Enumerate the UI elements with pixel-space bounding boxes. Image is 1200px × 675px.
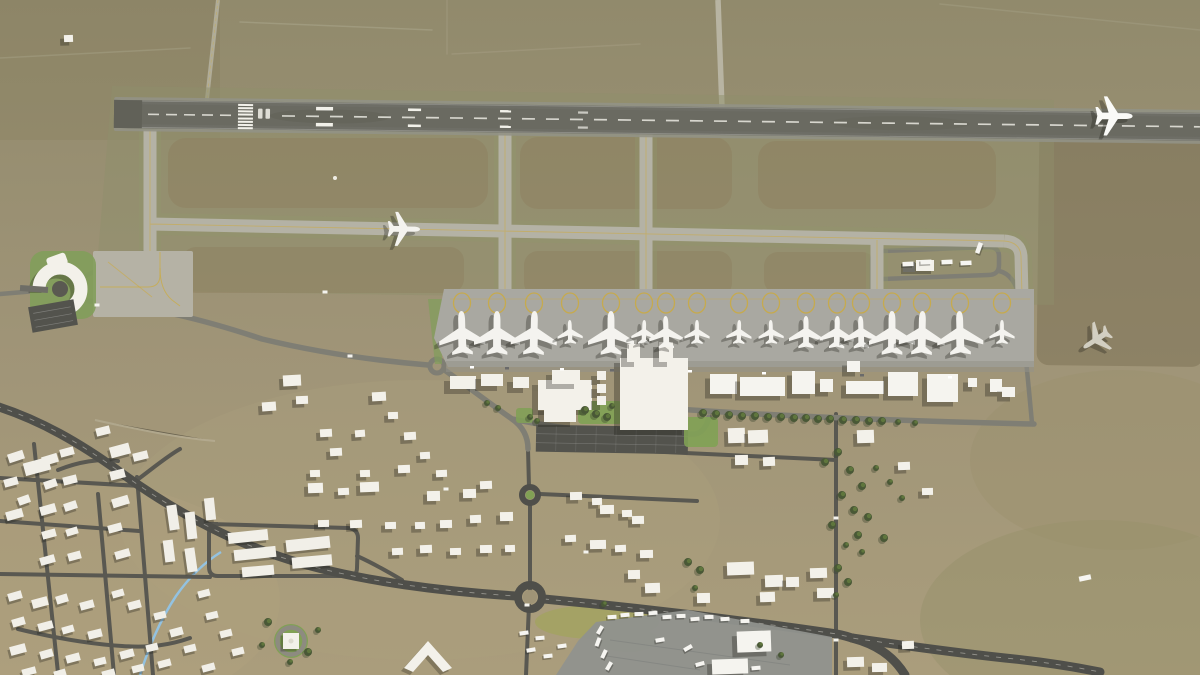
map-viewport[interactable] <box>0 0 1200 675</box>
atmospheric-haze <box>0 0 1200 675</box>
aerial-scene <box>0 0 1200 675</box>
